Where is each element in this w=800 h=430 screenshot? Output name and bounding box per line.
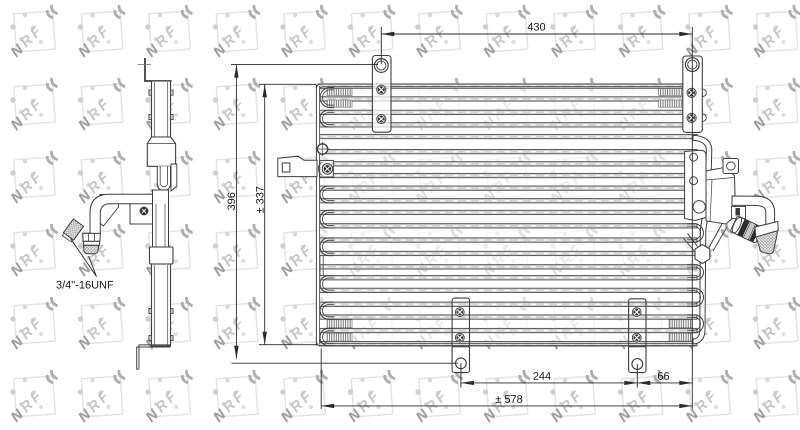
svg-text:± 337: ± 337 bbox=[254, 186, 266, 213]
svg-text:3/4"-16UNF: 3/4"-16UNF bbox=[56, 280, 114, 292]
svg-text:396: 396 bbox=[226, 192, 238, 210]
svg-text:± 578: ± 578 bbox=[495, 394, 522, 406]
svg-text:66: 66 bbox=[657, 371, 669, 383]
svg-text:430: 430 bbox=[527, 21, 545, 33]
svg-text:244: 244 bbox=[533, 371, 551, 383]
